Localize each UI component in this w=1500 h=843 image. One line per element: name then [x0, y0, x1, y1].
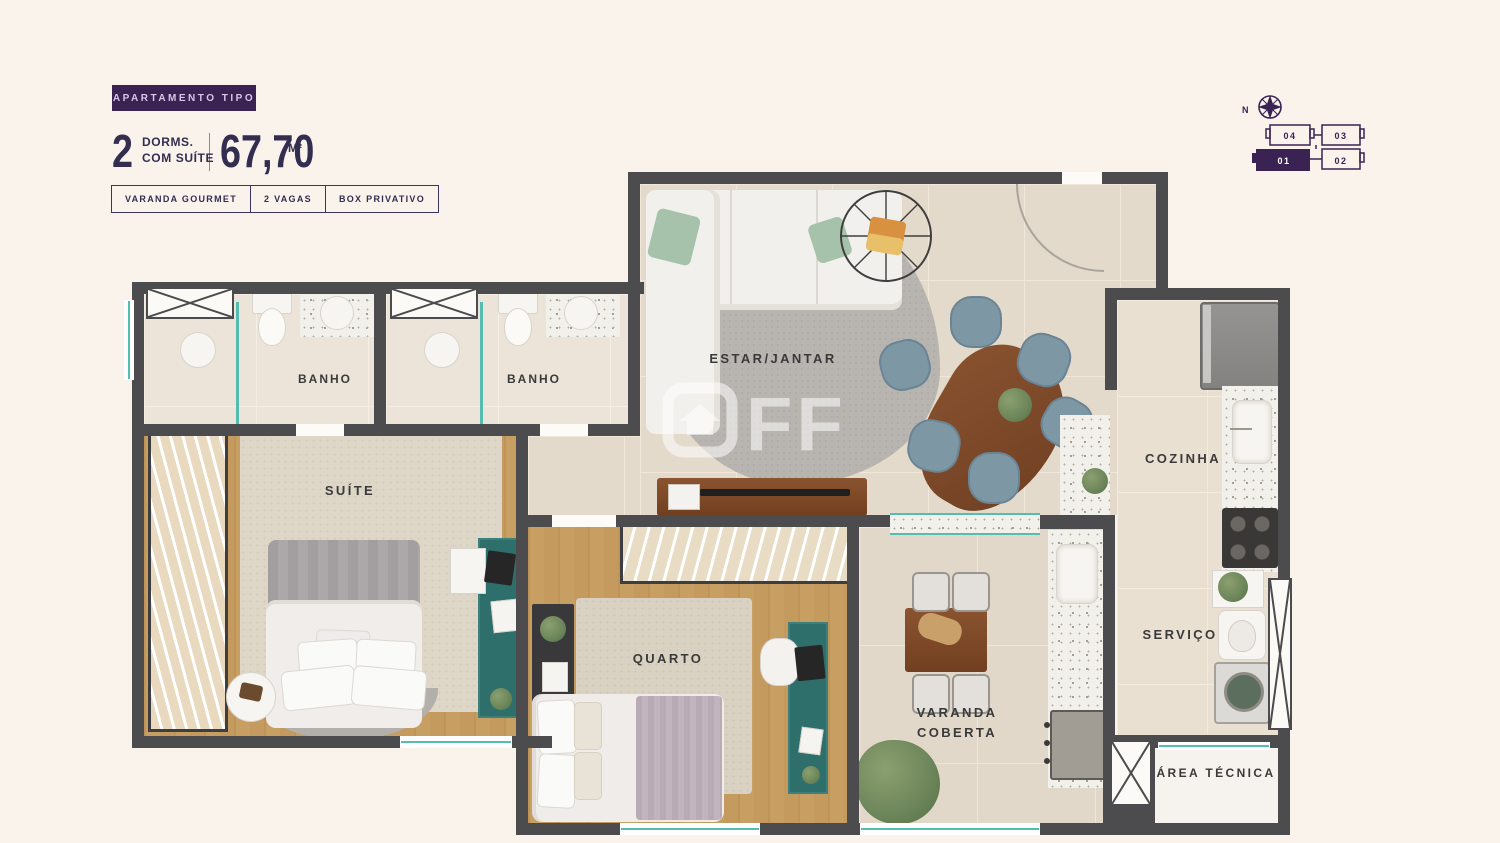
label-estar-jantar: ESTAR/JANTAR	[688, 349, 858, 369]
north-label: N	[1242, 105, 1249, 115]
vanity-bowl	[564, 296, 598, 330]
entry-door-gap	[1062, 172, 1102, 184]
wall	[847, 515, 859, 835]
wall	[628, 294, 640, 424]
label-servico: SERVIÇO	[1122, 625, 1238, 645]
varanda-chair	[952, 572, 990, 612]
bed-pillow	[350, 665, 427, 711]
toilet-bowl	[504, 308, 532, 346]
varanda-plant	[856, 740, 940, 824]
coffee-table	[838, 188, 934, 284]
keyplan-unit-02: 02	[1334, 156, 1347, 166]
label-banho-social: BANHO	[474, 370, 594, 389]
gourmet-sink	[1056, 544, 1098, 604]
off-watermark-ff: FF	[746, 382, 847, 466]
wall	[628, 172, 640, 294]
grill	[1050, 710, 1106, 780]
tag-box-privativo: BOX PRIVATIVO	[325, 185, 439, 213]
bed-pillow	[574, 702, 602, 750]
header-divider	[209, 133, 210, 171]
wall	[1105, 288, 1290, 300]
shelf-book	[542, 662, 568, 692]
varanda-chair	[912, 572, 950, 612]
building-keyplan: 04 03 01 02	[1246, 116, 1366, 176]
vanity-bowl	[320, 296, 354, 330]
service-shaft	[1268, 578, 1292, 730]
dining-chair	[968, 452, 1020, 504]
label-banho-suite: BANHO	[265, 370, 385, 389]
dorms-line1: DORMS.	[142, 134, 214, 150]
tag-varanda-gourmet: VARANDA GOURMET	[111, 185, 251, 213]
table-plant	[998, 388, 1032, 422]
quarto-window	[620, 823, 760, 835]
wall	[516, 424, 528, 835]
quarto-plant	[802, 766, 820, 784]
pedestal-sink	[180, 332, 216, 368]
suite-closet	[148, 430, 228, 732]
bed-pillow	[574, 752, 602, 800]
shower-box	[146, 287, 234, 319]
bath2-door-gap	[540, 424, 588, 436]
label-quarto: QUARTO	[608, 649, 728, 669]
keyplan-unit-01: 01	[1277, 156, 1290, 166]
dorms-number: 2	[112, 128, 133, 174]
hall-floor	[528, 436, 640, 515]
kitchen-faucet	[1230, 428, 1252, 430]
area-tecnica-floor	[1155, 748, 1278, 823]
label-cozinha: COZINHA	[1125, 449, 1241, 469]
counter-plant	[1082, 468, 1108, 494]
shower-glass	[236, 302, 239, 430]
washer-lid	[1224, 672, 1264, 712]
shower-box	[390, 287, 478, 319]
label-suite: SUÍTE	[290, 481, 410, 501]
desk-chair	[760, 638, 800, 686]
bed-pillow	[537, 753, 578, 809]
area-tecnica-window	[1158, 742, 1270, 750]
wall	[374, 294, 386, 436]
toilet-bowl	[258, 308, 286, 346]
dining-chair	[950, 296, 1002, 348]
keyplan-unit-03: 03	[1334, 131, 1347, 141]
bed-pillow	[280, 664, 358, 712]
kitchen-peninsula	[1060, 415, 1110, 515]
shower-glass	[480, 302, 483, 430]
area-unit: M²	[288, 141, 302, 155]
dorms-line2: COM SUÍTE	[142, 150, 214, 166]
pedestal-sink	[424, 332, 460, 368]
quarto-door-gap	[552, 515, 616, 527]
label-varanda-coberta: VARANDA COBERTA	[887, 703, 1027, 743]
wall	[1278, 288, 1290, 835]
grill-knob	[1044, 758, 1050, 764]
suite-plant	[490, 688, 512, 710]
service-plant	[1218, 572, 1248, 602]
off-watermark: FF	[660, 378, 870, 466]
stove	[1222, 508, 1278, 568]
keyplan-unit-04: 04	[1283, 131, 1296, 141]
grill-knob	[1044, 722, 1050, 728]
wall	[1105, 288, 1117, 390]
grill-knob	[1044, 740, 1050, 746]
off-logo-house-icon	[680, 404, 720, 435]
wall	[1156, 172, 1168, 300]
label-area-tecnica: ÁREA TÉCNICA	[1146, 764, 1286, 783]
laptop	[484, 550, 516, 586]
laptop	[794, 645, 825, 682]
floor-plan-page: APARTAMENTO TIPO 2 DORMS. COM SUÍTE 67,7…	[0, 0, 1500, 843]
tv	[700, 489, 850, 496]
apartment-type-badge: APARTAMENTO TIPO	[112, 85, 256, 111]
console-decor	[668, 484, 700, 510]
suite-window	[400, 736, 512, 748]
suite-desk	[450, 548, 486, 594]
bath1-door-gap	[296, 424, 344, 436]
feature-tags: VARANDA GOURMET 2 VAGAS BOX PRIVATIVO	[112, 185, 439, 213]
quarto-blanket	[636, 696, 722, 820]
tag-vagas: 2 VAGAS	[250, 185, 326, 213]
varanda-window	[860, 823, 1040, 835]
quarto-wardrobe	[620, 520, 852, 584]
fridge-handle	[1203, 305, 1211, 383]
bath1-window	[124, 300, 134, 380]
passage-threshold	[890, 513, 1040, 535]
shelf-plant	[540, 616, 566, 642]
fridge	[1200, 302, 1280, 390]
desk-paper	[798, 727, 823, 756]
